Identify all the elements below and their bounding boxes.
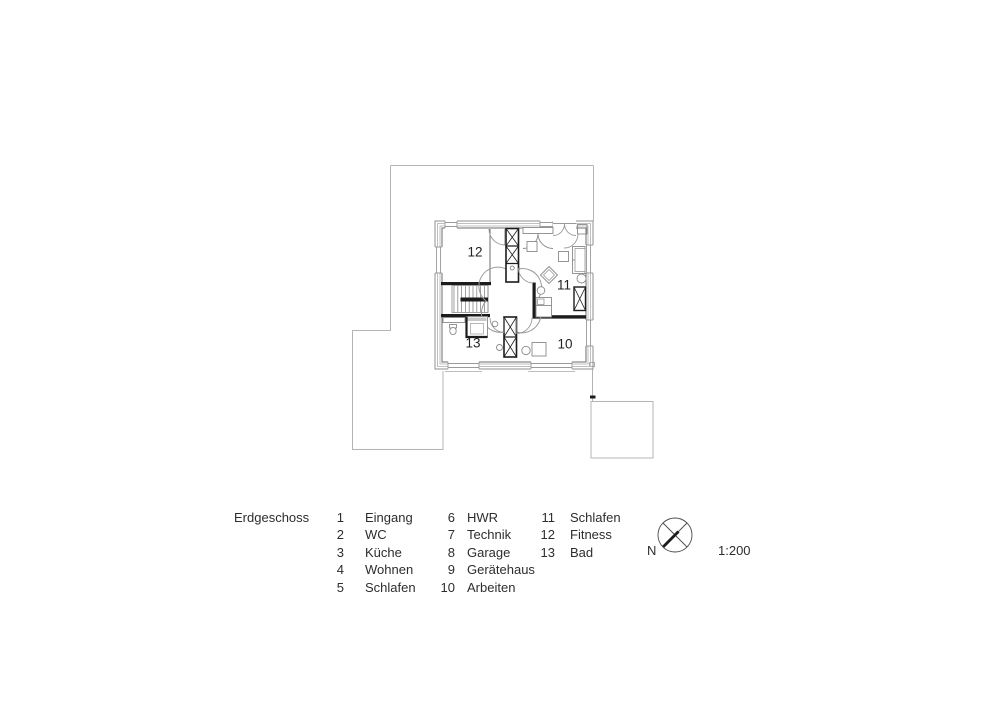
page-title: Erdgeschoss bbox=[234, 509, 309, 526]
shaft-top bbox=[506, 229, 519, 283]
legend-item: 10 Arbeiten bbox=[425, 579, 535, 596]
window-right-lower bbox=[585, 320, 594, 346]
legend-item-number: 11 bbox=[525, 509, 555, 526]
legend-item-number: 1 bbox=[322, 509, 344, 526]
legend-item: 6 HWR bbox=[425, 509, 535, 526]
floor-plan-page: 12 11 13 10 Erdgeschoss 1 Eingang 2 WC 3… bbox=[0, 0, 1001, 701]
north-label: N bbox=[647, 543, 656, 558]
boundary-tick bbox=[590, 396, 596, 399]
window-right-upper bbox=[585, 245, 594, 273]
sofa bbox=[573, 247, 586, 274]
legend-item-label: Küche bbox=[365, 544, 402, 561]
wall-below-fitness bbox=[441, 282, 491, 285]
stool-square bbox=[527, 242, 537, 252]
washbasin-counter bbox=[443, 318, 465, 323]
bathroom-fixtures bbox=[443, 317, 498, 338]
legend-item: 8 Garage bbox=[425, 544, 535, 561]
small-drain bbox=[497, 345, 503, 351]
armchair-diamond bbox=[541, 267, 558, 284]
legend-item: 11 Schlafen bbox=[525, 509, 621, 526]
legend-item: 12 Fitness bbox=[525, 526, 621, 543]
outbuilding-outline bbox=[591, 402, 653, 459]
window-bottom-right bbox=[528, 361, 575, 372]
shaft-right-wall bbox=[574, 287, 586, 311]
room-number-bedroom: 11 bbox=[557, 278, 571, 293]
room-number-bath: 13 bbox=[465, 336, 480, 351]
legend-item-label: Arbeiten bbox=[467, 579, 515, 596]
room-number-office: 10 bbox=[557, 337, 572, 352]
legend-item-label: Eingang bbox=[365, 509, 413, 526]
shaft-bottom bbox=[504, 317, 517, 357]
legend-item-label: Schlafen bbox=[365, 579, 416, 596]
window-left bbox=[434, 247, 443, 273]
property-boundary bbox=[353, 166, 654, 459]
plant bbox=[577, 274, 586, 283]
north-compass-icon bbox=[655, 515, 697, 557]
bed bbox=[536, 298, 552, 318]
legend-item-number: 3 bbox=[322, 544, 344, 561]
staircase bbox=[452, 286, 488, 313]
stool-round bbox=[537, 287, 545, 295]
legend-item: 2 WC bbox=[322, 526, 416, 543]
legend-column-2: 6 HWR 7 Technik 8 Garage 9 Gerätehaus 10… bbox=[425, 509, 535, 596]
wall-bedroom-vertical bbox=[533, 283, 536, 319]
desk bbox=[532, 343, 546, 357]
legend-column-3: 11 Schlafen 12 Fitness 13 Bad bbox=[525, 509, 621, 561]
legend-item: 9 Gerätehaus bbox=[425, 561, 535, 578]
legend-item-label: Wohnen bbox=[365, 561, 413, 578]
legend-item: 4 Wohnen bbox=[322, 561, 416, 578]
french-door-opening bbox=[553, 220, 576, 236]
legend-item-label: HWR bbox=[467, 509, 498, 526]
legend-item-number: 6 bbox=[425, 509, 455, 526]
legend-item-number: 4 bbox=[322, 561, 344, 578]
legend-item-number: 2 bbox=[322, 526, 344, 543]
legend-item-number: 9 bbox=[425, 561, 455, 578]
window-top-left bbox=[445, 220, 457, 229]
legend-item-label: WC bbox=[365, 526, 387, 543]
legend-item-label: Schlafen bbox=[570, 509, 621, 526]
room-number-fitness: 12 bbox=[467, 245, 482, 260]
legend-item-number: 8 bbox=[425, 544, 455, 561]
legend-item-number: 10 bbox=[425, 579, 455, 596]
legend-item-label: Technik bbox=[467, 526, 511, 543]
legend-item: 5 Schlafen bbox=[322, 579, 416, 596]
legend-item-label: Bad bbox=[570, 544, 593, 561]
door-fitness bbox=[489, 229, 505, 245]
shower bbox=[466, 317, 488, 338]
window-bottom-left bbox=[445, 361, 482, 372]
side-table bbox=[559, 252, 569, 262]
legend-item: 7 Technik bbox=[425, 526, 535, 543]
floor-drain bbox=[492, 321, 498, 327]
legend-item-label: Garage bbox=[467, 544, 510, 561]
legend-item: 13 Bad bbox=[525, 544, 621, 561]
legend-item-label: Gerätehaus bbox=[467, 561, 535, 578]
scale-label: 1:200 bbox=[718, 543, 751, 558]
legend-item-number: 12 bbox=[525, 526, 555, 543]
legend-item-label: Fitness bbox=[570, 526, 612, 543]
legend-item: 1 Eingang bbox=[322, 509, 416, 526]
legend-column-1: 1 Eingang 2 WC 3 Küche 4 Wohnen 5 Schlaf… bbox=[322, 509, 416, 596]
legend-item: 3 Küche bbox=[322, 544, 416, 561]
desk-chair bbox=[522, 346, 530, 354]
toilet bbox=[450, 325, 457, 335]
legend-item-number: 7 bbox=[425, 526, 455, 543]
legend-item-number: 13 bbox=[525, 544, 555, 561]
legend-item-number: 5 bbox=[322, 579, 344, 596]
